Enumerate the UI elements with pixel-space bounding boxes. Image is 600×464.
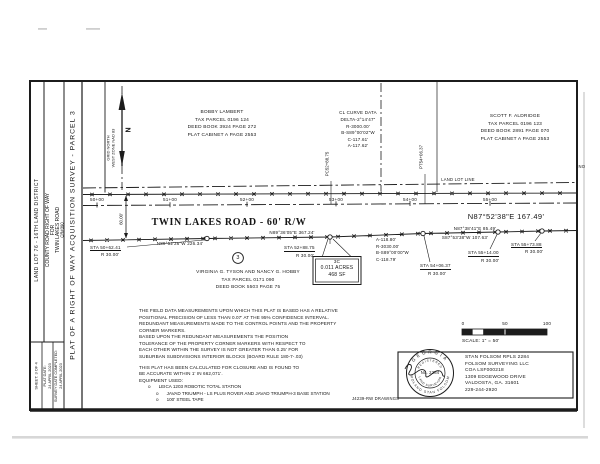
road-centerline — [83, 203, 577, 206]
land-lot-line-label: LAND LOT LINE — [441, 178, 474, 183]
north-rw-line — [83, 191, 577, 196]
curve-table-row: B-S89°00'02"W — [341, 130, 375, 135]
seal-registered: REGISTERED — [417, 358, 444, 369]
sta-callout: STA 54+06.37 — [420, 263, 451, 270]
owner-east-tax: TAX PARCEL 0196 123 — [488, 122, 542, 128]
curve-table-row: DELTA-2°14'47" — [341, 117, 376, 122]
note-line: SUBURBAN SUBDIVISIONS INTERIOR BLOCKS (B… — [139, 354, 338, 361]
area-acres: 0.011 ACRES — [321, 266, 354, 272]
land-lot-label: LAND LOT 76 - 16TH LAND DISTRICT — [34, 178, 40, 281]
plat-title: PLAT OF A RIGHT OF WAY ACQUISITION SURVE… — [70, 110, 77, 360]
corner-note: NO — [579, 165, 586, 170]
svg-text:REGISTERED: REGISTERED — [417, 358, 444, 369]
drawing-ref: J4239-RW DRAWINGS — [352, 397, 399, 402]
owner-east-deed: DEED BOOK 2891 PAGE 070 — [481, 129, 550, 135]
area-parcel-id: 3C — [334, 259, 340, 264]
width-dim-label: 60.00' — [118, 213, 123, 225]
bearing-acquired: N89°36'05"E 367.24' — [269, 230, 314, 235]
station-label: 51+00 — [163, 197, 177, 202]
sta-offset: R 30.00' — [101, 252, 119, 257]
scale-tick-50: 50 — [502, 321, 508, 326]
owner-north-name: BOBBY LAMBERT — [201, 110, 244, 116]
bearing-main: N87°52'38"E 167.49' — [468, 213, 545, 222]
curve-table-row: C-117.61' — [348, 137, 369, 142]
station-label: 52+00 — [240, 197, 254, 202]
surveyor-line: STAN FOLSOM RPLS 2284 — [465, 355, 529, 361]
station-label: 54+00 — [403, 197, 417, 202]
rw-curve-row: R-3030.00' — [376, 244, 399, 249]
equipment-row: o 100' STEEL TAPE — [139, 397, 338, 404]
station-label: 53+00 — [329, 197, 343, 202]
svg-text:LAND SURVEYOR: LAND SURVEYOR — [418, 376, 443, 388]
rw-curve-row: A-118.80' — [376, 237, 396, 242]
owner-south-name: VIRGINIA G. TYSON AND NANCY G. HOBBY — [196, 269, 300, 274]
sta-callout: STA 55+14.00 — [468, 250, 499, 257]
rw-curve-row: B-S89°00'00"W — [376, 250, 409, 255]
scale-label: SCALE: 1" = 50' — [462, 339, 500, 345]
plat-date-value: 24 APRIL 2023 — [48, 363, 52, 388]
surveyor-line: COA LSF000218 — [465, 368, 504, 374]
bullet: o — [156, 397, 159, 404]
survey-notes: THE FIELD DATA MEASUREMENTS UPON WHICH T… — [139, 308, 338, 404]
seal-number: No. 2284 — [421, 371, 440, 376]
sta-offset: R 30.00' — [525, 249, 543, 254]
width-dimension-arrow — [124, 196, 128, 239]
area-sf: 468 SF — [328, 273, 345, 279]
curve-table-title: CL CURVE DATA — [339, 110, 377, 115]
surveyor-line: 229-244-2920 — [465, 388, 497, 394]
bearing-east-1: N87°38'41"E 85.49' — [454, 226, 497, 231]
surveyor-line: FOLSOM SURVEYING LLC — [465, 362, 529, 368]
scan-shadow-right — [583, 92, 585, 428]
station-label: 55+00 — [483, 197, 497, 202]
scan-mark-2 — [86, 28, 100, 30]
plat-date-label: PLAT DATE: — [43, 365, 47, 386]
sta-offset: R 30.00' — [481, 258, 499, 263]
sta-callout: STA 52+88.75 — [284, 245, 315, 252]
seal-title: LAND SURVEYOR — [418, 376, 443, 388]
owner-north-deed: DEED BOOK 3924 PAGE 272 — [188, 125, 257, 131]
owner-south-deed: DEED BOOK 5503 PAGE 75 — [216, 284, 281, 289]
north-letter: N — [126, 127, 133, 132]
north-arrow — [119, 93, 126, 167]
station-label: 50+00 — [90, 197, 104, 202]
note-line: THE FIELD DATA MEASUREMENTS UPON WHICH T… — [139, 308, 338, 315]
bearing-east-2: S87°53'38"W 107.63' — [442, 235, 488, 240]
road-name: TWIN LAKES ROAD - 60' R/W — [152, 217, 307, 229]
curve-table-row: R-3000.00' — [346, 124, 370, 129]
county-road-number: CR#390 — [59, 222, 64, 237]
equipment-item: 100' STEEL TAPE — [167, 397, 204, 404]
owner-north-plat: PLAT CABINET A PAGE 2553 — [188, 133, 257, 139]
sta-offset: R 30.00' — [428, 271, 446, 276]
owner-south-tax: TAX PARCEL 0171 090 — [222, 277, 275, 282]
surveyor-line: 1309 EDGEWOOD DRIVE — [465, 375, 526, 381]
sheet-label: SHEET: 3 OF 4 — [34, 362, 39, 389]
plat-sheet: GEORGIA REGISTERED LAND SURVEYOR ROLAND … — [0, 0, 600, 464]
pt-label: PT54+06.37 — [419, 145, 424, 169]
owner-east-name: SCOTT F. ALDRIDGE — [490, 114, 540, 120]
scale-bar — [462, 329, 547, 335]
scale-tick-100: 100 — [543, 321, 551, 326]
survey-date-label: SURVEY DATE COMPLETED: — [54, 350, 58, 402]
grid-north-label-2: WEST ZONE NAD 83 — [111, 129, 116, 168]
owner-north-tax: TAX PARCEL 0196 124 — [195, 118, 249, 124]
curve-table-row: A-117.62' — [348, 143, 369, 148]
survey-date-value: 24 APRIL 2023 — [59, 363, 63, 388]
owner-east-plat: PLAT CABINET A PAGE 2553 — [481, 137, 550, 143]
bearing-west: N89°52'26"W 226.34' — [157, 241, 203, 246]
rw-curve-row: C-118.79' — [376, 257, 396, 262]
scan-shadow-bottom — [12, 436, 588, 439]
scale-tick-0: 0 — [462, 321, 465, 326]
pc-label: PC52+88.75 — [325, 152, 330, 177]
parcel-badge: 3 — [236, 255, 239, 261]
land-lot-line — [83, 183, 577, 189]
surveyor-line: VALDOSTA, GA. 31601 — [465, 381, 519, 387]
note-line: REDUNDANT MEASUREMENTS MADE TO THE CONTR… — [139, 321, 338, 328]
sta-offset: R 30.00' — [296, 253, 314, 258]
sta-callout: STA 50+62.41 — [90, 245, 121, 252]
sta-callout: STA 55+73.88 — [511, 242, 542, 249]
bullet: o — [148, 384, 151, 391]
scan-mark-1 — [38, 28, 47, 30]
